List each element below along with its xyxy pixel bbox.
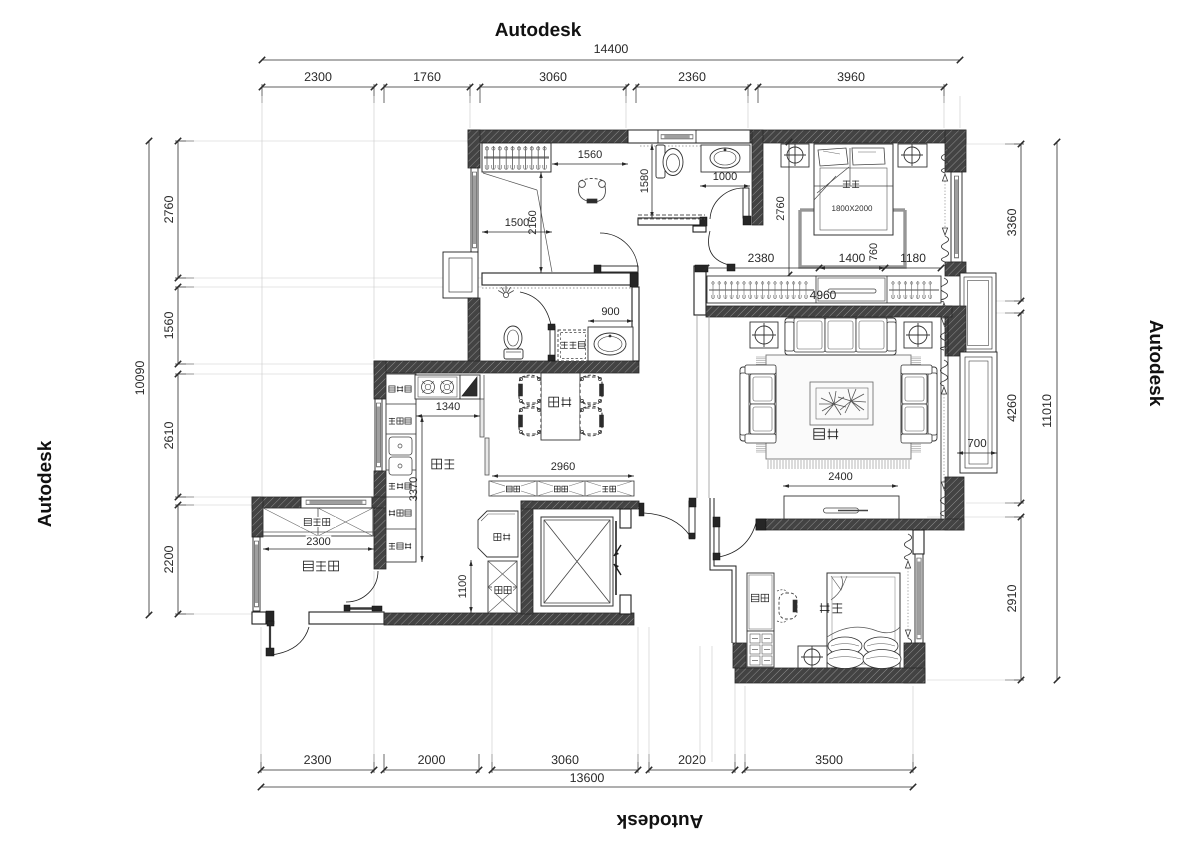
- svg-text:2300: 2300: [304, 70, 332, 84]
- svg-text:2400: 2400: [828, 471, 852, 483]
- svg-text:1560: 1560: [578, 149, 602, 161]
- svg-text:14400: 14400: [594, 42, 629, 56]
- svg-text:2610: 2610: [162, 422, 176, 450]
- svg-text:2910: 2910: [1005, 585, 1019, 613]
- svg-text:1500: 1500: [505, 217, 529, 229]
- svg-text:2160: 2160: [527, 210, 539, 234]
- svg-text:2000: 2000: [418, 753, 446, 767]
- svg-text:1400: 1400: [839, 251, 866, 265]
- svg-text:Autodesk: Autodesk: [1145, 320, 1166, 407]
- svg-text:1100: 1100: [457, 575, 469, 599]
- svg-text:4260: 4260: [1005, 394, 1019, 422]
- svg-text:760: 760: [868, 243, 880, 261]
- svg-text:2200: 2200: [162, 546, 176, 574]
- svg-text:2960: 2960: [551, 461, 575, 473]
- svg-text:3360: 3360: [1005, 209, 1019, 237]
- svg-text:700: 700: [967, 438, 986, 450]
- svg-text:2760: 2760: [162, 196, 176, 224]
- svg-text:11010: 11010: [1040, 394, 1054, 428]
- svg-text:2380: 2380: [748, 251, 775, 265]
- svg-text:3960: 3960: [837, 70, 865, 84]
- svg-text:4960: 4960: [810, 288, 837, 302]
- svg-text:1760: 1760: [413, 70, 441, 84]
- svg-text:1560: 1560: [162, 312, 176, 340]
- svg-text:13600: 13600: [570, 771, 605, 785]
- svg-text:1340: 1340: [436, 401, 460, 413]
- svg-text:2760: 2760: [775, 196, 787, 220]
- svg-text:1800X2000: 1800X2000: [832, 204, 873, 213]
- svg-text:1000: 1000: [713, 171, 737, 183]
- svg-text:Autodesk: Autodesk: [616, 810, 703, 831]
- svg-text:900: 900: [601, 306, 619, 318]
- svg-text:Autodesk: Autodesk: [495, 20, 582, 41]
- svg-text:3060: 3060: [551, 753, 579, 767]
- svg-text:1180: 1180: [900, 251, 926, 265]
- svg-text:2020: 2020: [678, 753, 706, 767]
- svg-text:Autodesk: Autodesk: [35, 440, 56, 527]
- svg-text:1580: 1580: [639, 169, 651, 193]
- svg-text:2300: 2300: [304, 753, 332, 767]
- svg-text:3500: 3500: [815, 753, 843, 767]
- svg-text:3370: 3370: [408, 477, 420, 501]
- svg-text:2300: 2300: [306, 536, 330, 548]
- svg-text:2360: 2360: [678, 70, 706, 84]
- svg-text:10090: 10090: [133, 361, 147, 396]
- svg-text:3060: 3060: [539, 70, 567, 84]
